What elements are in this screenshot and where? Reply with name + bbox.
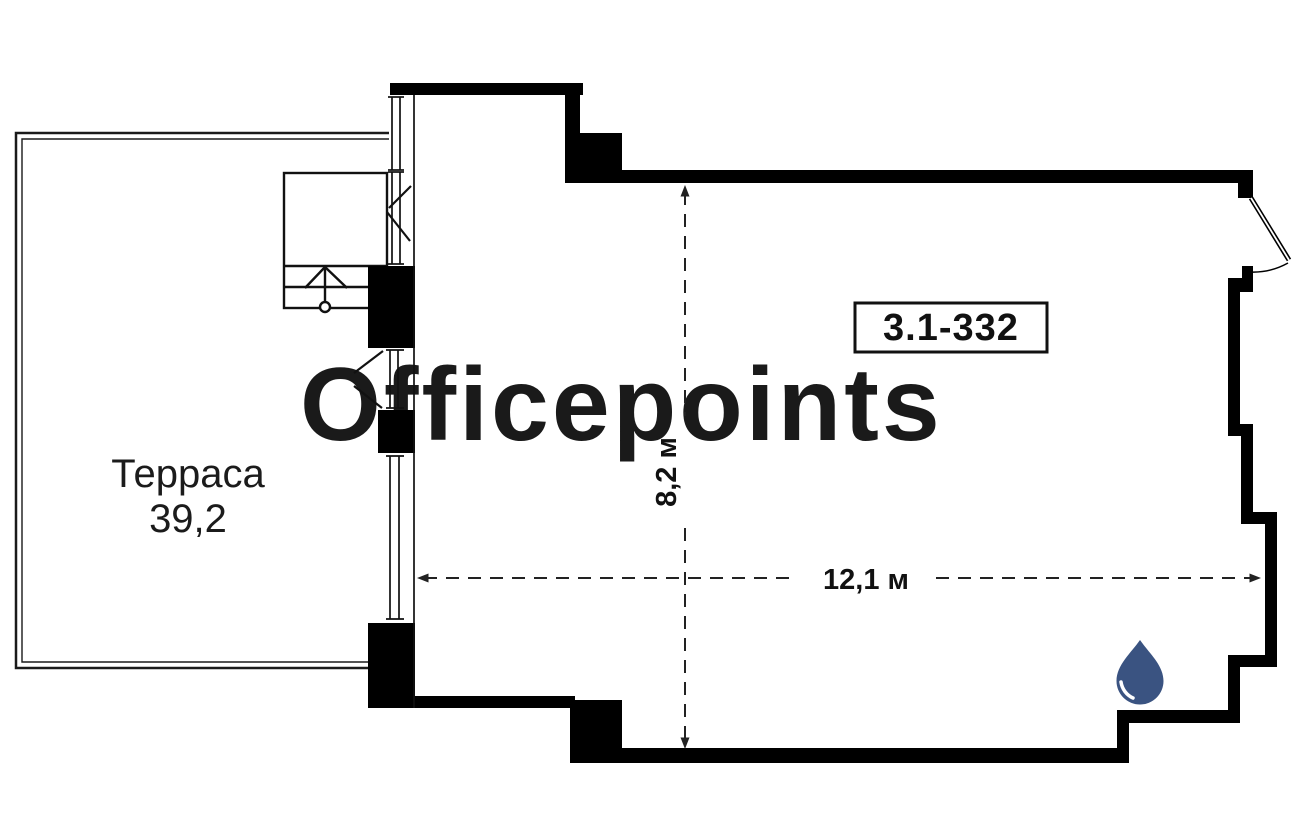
wall-segment: [570, 700, 622, 763]
water-drop-shape: [1117, 640, 1164, 704]
arrow-down: [681, 738, 690, 750]
wall-segment: [378, 410, 415, 453]
wall-segment: [1241, 424, 1253, 524]
stairs-start-marker: [320, 302, 330, 312]
wall-segment: [1265, 512, 1277, 667]
terrace-label: Терраса: [111, 452, 265, 496]
terrace-area-value: 39,2: [149, 497, 227, 541]
floor-plan-canvas: Officepoints: [0, 0, 1295, 814]
wall-segment: [565, 95, 580, 137]
room-number-badge: 3.1-332: [855, 303, 1047, 352]
arrow-left: [417, 574, 429, 583]
arrow-right: [1250, 574, 1262, 583]
floor-plan: Officepoints: [0, 0, 1295, 814]
entrance-door: [1250, 198, 1289, 272]
wall-segment: [368, 623, 415, 708]
wall-segment: [565, 133, 622, 183]
wall-segment: [622, 748, 1129, 763]
door-leaf: [387, 212, 410, 241]
door-leaf-gap: [1251, 198, 1289, 260]
door-swing-arc: [1250, 263, 1288, 272]
horizontal-dimension-label: 12,1 м: [823, 564, 909, 596]
wall-segment: [622, 170, 1253, 183]
water-drop-icon: [1117, 640, 1164, 704]
wall-segment: [415, 696, 575, 708]
wall-segment: [390, 83, 583, 95]
room-number-text: 3.1-332: [883, 307, 1019, 349]
wall-segment: [1238, 183, 1253, 198]
wall-segment: [368, 266, 415, 348]
vertical-dimension-label: 8,2 м: [651, 437, 683, 507]
wall-segment: [1228, 280, 1240, 436]
arrow-up: [681, 185, 690, 197]
wall-segment: [1122, 710, 1240, 723]
